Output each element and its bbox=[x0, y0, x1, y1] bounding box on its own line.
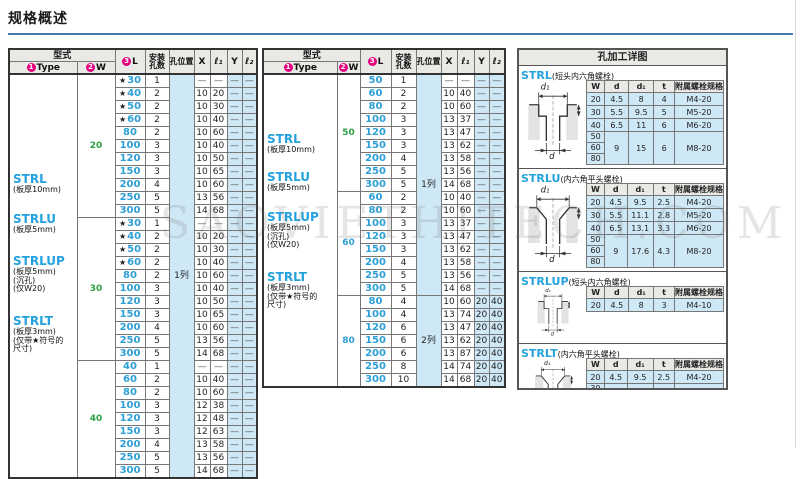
l1-value-cell: 60 bbox=[457, 296, 474, 309]
table-header-row: Wdd₁t附属螺栓规格 bbox=[587, 81, 724, 93]
y-value-cell: — bbox=[227, 283, 242, 296]
l-value: 300 bbox=[365, 179, 386, 190]
l1-value-cell: 40 bbox=[210, 114, 227, 127]
column-header: 附属螺栓规格 bbox=[674, 184, 723, 196]
table-row: 204.59.52.5M4-20 bbox=[587, 196, 724, 209]
hole-position-cell: 2列 bbox=[416, 296, 441, 388]
hole-count-cell: 5 bbox=[391, 166, 416, 179]
l2-value-cell: — bbox=[242, 374, 257, 387]
hole-count-cell: 8 bbox=[391, 361, 416, 374]
hole-position-column-header: 孔位置 bbox=[169, 49, 194, 74]
l-value-cell: 300 bbox=[115, 465, 145, 479]
l1-value-cell: 40 bbox=[210, 140, 227, 153]
l2-value-cell: — bbox=[242, 400, 257, 413]
t-value-cell: 6 bbox=[654, 132, 675, 165]
column-header: d bbox=[604, 184, 627, 196]
x-value-cell: 10 bbox=[194, 166, 210, 179]
x-value-cell: 14 bbox=[441, 283, 457, 296]
y-value-cell: — bbox=[474, 74, 489, 88]
w-size-cell: 40 bbox=[587, 222, 605, 235]
hole-count-cell: 1 bbox=[145, 218, 169, 231]
d-value-cell: 6.5 bbox=[604, 222, 627, 235]
l1-value-cell: 40 bbox=[210, 283, 227, 296]
table-row: 406.513.13.3M6-20 bbox=[587, 222, 724, 235]
l1-value-cell: 74 bbox=[457, 309, 474, 322]
w-size-cell: 30 bbox=[587, 384, 605, 391]
x-value-cell: 13 bbox=[441, 153, 457, 166]
l-value: 250 bbox=[365, 270, 386, 281]
spec-value-cell: M4-20 bbox=[674, 93, 723, 106]
x-value-cell: 10 bbox=[194, 270, 210, 283]
l1-value-cell: 60 bbox=[457, 205, 474, 218]
l1-value-cell: 60 bbox=[210, 322, 227, 335]
y-value-cell: — bbox=[227, 166, 242, 179]
x-value-cell: 14 bbox=[194, 465, 210, 479]
l-value: 200 bbox=[365, 348, 386, 359]
l-value-cell: 60 bbox=[360, 192, 391, 205]
x-value-cell: 10 bbox=[194, 114, 210, 127]
section-body: d₁dWdd₁t附属螺栓规格204.59.52.5M4-20305.511.12… bbox=[521, 183, 724, 268]
l-value-cell: 120 bbox=[115, 296, 145, 309]
spec-value-cell: M8-20 bbox=[674, 235, 723, 268]
l1-value-cell: 65 bbox=[210, 166, 227, 179]
l-value-cell: 200 bbox=[360, 257, 391, 270]
l-value-cell: 100 bbox=[360, 218, 391, 231]
l-value-cell: 120 bbox=[115, 153, 145, 166]
l1-value-cell: 68 bbox=[457, 283, 474, 296]
y-value-cell: — bbox=[474, 179, 489, 192]
spec-value-cell: M4-20 bbox=[674, 371, 723, 384]
x-value-cell: 13 bbox=[441, 231, 457, 244]
y-value-cell: — bbox=[227, 400, 242, 413]
table-header-row: Wdd₁t附属螺栓规格 bbox=[587, 359, 724, 371]
x-value-cell: 10 bbox=[441, 88, 457, 101]
column-header: d bbox=[604, 359, 627, 371]
l1-value-cell: 40 bbox=[210, 374, 227, 387]
l2-value-cell: — bbox=[242, 296, 257, 309]
w-value-cell: 60 bbox=[337, 192, 360, 296]
hole-count-cell: 2 bbox=[145, 257, 169, 270]
hole-count-cell: 3 bbox=[145, 309, 169, 322]
hole-count-cell: 3 bbox=[391, 140, 416, 153]
x-value-cell: 10 bbox=[194, 296, 210, 309]
l2-value-cell: — bbox=[489, 179, 505, 192]
l2-value-cell: — bbox=[242, 413, 257, 426]
l-value: 50 bbox=[369, 75, 383, 86]
hole-detail-section-strl: STRL(短头内六角螺栓)d₁dWdd₁t附属螺栓规格204.584M4-203… bbox=[519, 66, 726, 168]
l-value-cell: 120 bbox=[115, 413, 145, 426]
hole-position-cell: 1列 bbox=[169, 74, 194, 478]
y-value-cell: — bbox=[227, 452, 242, 465]
l-value-cell: 150 bbox=[360, 244, 391, 257]
l-value: 80 bbox=[123, 387, 137, 398]
hole-count-cell: 3 bbox=[391, 244, 416, 257]
l-value: 120 bbox=[365, 322, 386, 333]
l-value: 80 bbox=[123, 127, 137, 138]
y-value-cell: — bbox=[474, 192, 489, 205]
hole-count-cell: 2 bbox=[145, 231, 169, 244]
l2-value-cell: — bbox=[489, 88, 505, 101]
l1-value-cell: 56 bbox=[457, 166, 474, 179]
hole-count-cell: 6 bbox=[391, 322, 416, 335]
w-size-cell: 20 bbox=[587, 93, 605, 106]
l1-value-cell: 60 bbox=[210, 179, 227, 192]
y-value-cell: — bbox=[474, 231, 489, 244]
x-value-cell: 13 bbox=[441, 309, 457, 322]
l1-value-cell: — bbox=[210, 74, 227, 88]
l-value-cell: 250 bbox=[115, 452, 145, 465]
l-value: 200 bbox=[120, 439, 141, 450]
y-value-cell: — bbox=[227, 205, 242, 218]
type-list-cell: STRL(板厚10mm)STRLU(板厚5mm)STRLUP(板厚5mm)(沉孔… bbox=[263, 74, 337, 387]
hole-count-cell: 5 bbox=[145, 335, 169, 348]
column-header: W bbox=[587, 287, 605, 299]
x-value-cell: 13 bbox=[194, 192, 210, 205]
l-value: 300 bbox=[120, 205, 141, 216]
l1-value-cell: 38 bbox=[210, 400, 227, 413]
y-value-cell: — bbox=[227, 426, 242, 439]
l1-value-cell: 40 bbox=[210, 257, 227, 270]
w-size-cell: 50 bbox=[587, 235, 605, 246]
l-value-cell: ★40 bbox=[115, 88, 145, 101]
x-value-cell: — bbox=[194, 361, 210, 374]
l-value-cell: 200 bbox=[115, 439, 145, 452]
x-value-cell: 12 bbox=[194, 426, 210, 439]
star-mark: ★ bbox=[119, 115, 126, 124]
l-value-cell: 150 bbox=[360, 140, 391, 153]
type-column-header: 1Type bbox=[263, 62, 337, 75]
table-row: 406.5116M6-20 bbox=[587, 119, 724, 132]
l-value-cell: 100 bbox=[115, 400, 145, 413]
hole-detail-panel-title: 孔加工详图 bbox=[519, 50, 726, 66]
counterbore-diagram-icon: d₁d bbox=[521, 80, 585, 164]
l1-value-cell: 47 bbox=[457, 127, 474, 140]
l-value-cell: 80 bbox=[115, 270, 145, 283]
l2-value-cell: — bbox=[242, 231, 257, 244]
x-value-cell: 13 bbox=[441, 166, 457, 179]
l1-value-cell: 87 bbox=[457, 348, 474, 361]
l2-column-header: ℓ₂ bbox=[242, 49, 257, 74]
table-header-row: Wdd₁t附属螺栓规格 bbox=[587, 184, 724, 196]
l-value-cell: 200 bbox=[360, 153, 391, 166]
y-value-cell: — bbox=[227, 257, 242, 270]
l2-value-cell: — bbox=[489, 140, 505, 153]
l1-value-cell: 40 bbox=[457, 192, 474, 205]
l-value: 60 bbox=[127, 114, 141, 125]
hole-count-cell: 1 bbox=[391, 74, 416, 88]
svg-text:d₁: d₁ bbox=[544, 360, 551, 367]
l-value-cell: 80 bbox=[115, 127, 145, 140]
l1-value-cell: 47 bbox=[457, 322, 474, 335]
l2-value-cell: — bbox=[489, 283, 505, 296]
column-header: 附属螺栓规格 bbox=[674, 287, 723, 299]
l2-value-cell: — bbox=[489, 192, 505, 205]
page-edge-line bbox=[795, 0, 796, 448]
l1-value-cell: 62 bbox=[457, 244, 474, 257]
y-value-cell: — bbox=[227, 231, 242, 244]
y-value-cell: — bbox=[474, 166, 489, 179]
l-value: 40 bbox=[127, 88, 141, 99]
section-title: STRLUP(短头内六角螺栓) bbox=[521, 273, 724, 286]
hole-count-cell: 3 bbox=[145, 283, 169, 296]
hole-detail-section-strlu: STRLU(内六角平头螺栓)d₁dWdd₁t附属螺栓规格204.59.52.5M… bbox=[519, 168, 726, 271]
l2-value-cell: — bbox=[489, 270, 505, 283]
type-note: (板厚5mm) bbox=[267, 184, 310, 192]
hole-dimension-table: Wdd₁t附属螺栓规格204.59.52.5M4-20305.511.12.8M… bbox=[586, 358, 724, 390]
type-list-cell: STRL(板厚10mm)STRLU(板厚5mm)STRLUP(板厚5mm)(沉孔… bbox=[9, 74, 77, 478]
length-column-header: 3L bbox=[115, 49, 145, 74]
l2-value-cell: — bbox=[242, 322, 257, 335]
l-value: 300 bbox=[120, 465, 141, 476]
d1-value-cell: 17.6 bbox=[627, 235, 653, 268]
l-value-cell: 150 bbox=[360, 335, 391, 348]
hole-count-cell: 3 bbox=[391, 218, 416, 231]
l-value: 120 bbox=[120, 153, 141, 164]
circled-number-3: 3 bbox=[368, 57, 377, 66]
y-value-cell: — bbox=[227, 88, 242, 101]
l2-value-cell: 40 bbox=[489, 348, 505, 361]
l-value-cell: ★30 bbox=[115, 218, 145, 231]
w-value-cell: 80 bbox=[337, 296, 360, 388]
x-value-cell: 13 bbox=[441, 218, 457, 231]
l1-value-cell: 68 bbox=[457, 374, 474, 388]
x-value-cell: 14 bbox=[441, 361, 457, 374]
hole-count-cell: 2 bbox=[391, 88, 416, 101]
l-value: 100 bbox=[120, 140, 141, 151]
l2-value-cell: 40 bbox=[489, 374, 505, 388]
w-value-cell: 50 bbox=[337, 74, 360, 192]
l-value: 60 bbox=[369, 88, 383, 99]
y-value-cell: — bbox=[474, 283, 489, 296]
l1-value-cell: 30 bbox=[210, 101, 227, 114]
l1-value-cell: 56 bbox=[210, 335, 227, 348]
l-value-cell: 250 bbox=[115, 335, 145, 348]
mount-holes-line2: 孔数 bbox=[149, 61, 165, 70]
x-value-cell: 10 bbox=[194, 387, 210, 400]
spec-value-cell: M8-20 bbox=[674, 132, 723, 165]
countersink-diagram-icon: d₁d bbox=[521, 358, 585, 390]
y-value-cell: — bbox=[227, 413, 242, 426]
d-value-cell: 5.5 bbox=[605, 106, 629, 119]
l2-value-cell: — bbox=[489, 114, 505, 127]
x-value-cell: 10 bbox=[194, 101, 210, 114]
l-value-cell: 150 bbox=[115, 166, 145, 179]
l1-value-cell: — bbox=[457, 74, 474, 88]
l-value-cell: 300 bbox=[115, 348, 145, 361]
x-value-cell: 14 bbox=[441, 374, 457, 388]
l-value: 60 bbox=[123, 374, 137, 385]
l1-value-cell: 65 bbox=[210, 309, 227, 322]
svg-text:d₁: d₁ bbox=[541, 83, 550, 93]
hole-count-cell: 4 bbox=[391, 153, 416, 166]
l1-value-cell: 48 bbox=[210, 413, 227, 426]
l-value: 40 bbox=[127, 231, 141, 242]
l1-value-cell: 60 bbox=[210, 270, 227, 283]
y-value-cell: 20 bbox=[474, 361, 489, 374]
l2-value-cell: — bbox=[242, 114, 257, 127]
x-value-cell: 10 bbox=[194, 88, 210, 101]
hole-count-cell: 5 bbox=[145, 348, 169, 361]
l-value: 120 bbox=[120, 413, 141, 424]
table-row: 204.584M4-20 bbox=[587, 93, 724, 106]
l-value-cell: 250 bbox=[360, 270, 391, 283]
l2-column-header: ℓ₂ bbox=[489, 49, 505, 74]
x-value-cell: 12 bbox=[194, 400, 210, 413]
type-note: (板厚5mm) bbox=[13, 226, 56, 234]
l1-column-header: ℓ₁ bbox=[210, 49, 227, 74]
l-value: 50 bbox=[127, 244, 141, 255]
l-value-cell: 250 bbox=[115, 192, 145, 205]
l-value: 150 bbox=[365, 244, 386, 255]
hole-position-column-header: 孔位置 bbox=[416, 49, 441, 74]
column-header: W bbox=[587, 184, 605, 196]
x-value-cell: 13 bbox=[441, 140, 457, 153]
spec-value-cell: M6-20 bbox=[674, 119, 723, 132]
l-value-cell: 50 bbox=[360, 74, 391, 88]
l-value-cell: 300 bbox=[115, 205, 145, 218]
type-group-header: 型式 bbox=[263, 49, 360, 62]
l1-value-cell: 30 bbox=[210, 244, 227, 257]
hole-count-cell: 2 bbox=[391, 205, 416, 218]
hole-dimension-table: Wdd₁t附属螺栓规格204.584M4-20305.59.55M5-20406… bbox=[586, 80, 724, 165]
x-value-cell: 13 bbox=[441, 348, 457, 361]
y-value-cell: 20 bbox=[474, 322, 489, 335]
hole-position-cell: 1列 bbox=[416, 74, 441, 296]
l1-value-cell: 50 bbox=[210, 153, 227, 166]
hole-detail-section-strlup: STRLUP(短头内六角螺栓)d₁dWdd₁t附属螺栓规格204.583M4-1… bbox=[519, 271, 726, 343]
l-value: 150 bbox=[365, 140, 386, 151]
hole-count-cell: 4 bbox=[145, 322, 169, 335]
y-value-cell: — bbox=[227, 465, 242, 479]
y-column-header: Y bbox=[474, 49, 489, 74]
t-value-cell: 6 bbox=[654, 119, 675, 132]
l-value-cell: 100 bbox=[360, 309, 391, 322]
hole-count-cell: 2 bbox=[145, 114, 169, 127]
svg-text:d: d bbox=[551, 331, 555, 336]
l-value-cell: 80 bbox=[360, 205, 391, 218]
l2-value-cell: — bbox=[242, 283, 257, 296]
hole-count-cell: 2 bbox=[145, 127, 169, 140]
t-value-cell: 3 bbox=[654, 299, 675, 312]
x-value-cell: 13 bbox=[441, 114, 457, 127]
x-value-cell: 10 bbox=[194, 127, 210, 140]
svg-text:d₁: d₁ bbox=[541, 186, 550, 196]
y-value-cell: — bbox=[227, 309, 242, 322]
t-value-cell: 2.8 bbox=[653, 209, 674, 222]
d-value-cell: 4.5 bbox=[605, 93, 629, 106]
x-column-header: X bbox=[194, 49, 210, 74]
hole-count-cell: 3 bbox=[145, 400, 169, 413]
x-value-cell: 10 bbox=[441, 205, 457, 218]
l2-value-cell: — bbox=[242, 179, 257, 192]
t-value-cell: 2.8 bbox=[653, 384, 674, 391]
column-header: t bbox=[654, 81, 675, 93]
y-value-cell: — bbox=[227, 270, 242, 283]
l-value-cell: 60 bbox=[360, 88, 391, 101]
x-value-cell: 10 bbox=[194, 374, 210, 387]
w-size-cell: 80 bbox=[587, 257, 605, 268]
l1-value-cell: 20 bbox=[210, 88, 227, 101]
x-value-cell: 10 bbox=[194, 179, 210, 192]
l-value: 100 bbox=[365, 309, 386, 320]
l-value-cell: ★40 bbox=[115, 231, 145, 244]
circled-number-3: 3 bbox=[122, 57, 131, 66]
y-value-cell: — bbox=[227, 114, 242, 127]
y-value-cell: — bbox=[474, 114, 489, 127]
l2-value-cell: 40 bbox=[489, 335, 505, 348]
l1-value-cell: 37 bbox=[457, 114, 474, 127]
l2-value-cell: — bbox=[242, 74, 257, 88]
section-body: d₁dWdd₁t附属螺栓规格204.584M4-20305.59.55M5-20… bbox=[521, 80, 724, 165]
d1-value-cell: 11.1 bbox=[627, 384, 653, 391]
l-value: 250 bbox=[365, 361, 386, 372]
l1-value-cell: 47 bbox=[457, 231, 474, 244]
l-value: 60 bbox=[127, 257, 141, 268]
l-value: 30 bbox=[127, 218, 141, 229]
l2-value-cell: — bbox=[242, 465, 257, 479]
l2-value-cell: — bbox=[489, 231, 505, 244]
y-value-cell: — bbox=[227, 361, 242, 374]
hole-count-cell: 2 bbox=[145, 88, 169, 101]
mount-holes-column-header: 安装孔数 bbox=[391, 49, 416, 74]
l1-value-cell: 68 bbox=[210, 348, 227, 361]
l2-value-cell: — bbox=[242, 166, 257, 179]
table-row: 305.511.12.8M5-20 bbox=[587, 209, 724, 222]
l-value-cell: 250 bbox=[360, 361, 391, 374]
l-value-cell: 300 bbox=[360, 179, 391, 192]
hole-count-cell: 5 bbox=[145, 192, 169, 205]
y-value-cell: — bbox=[474, 218, 489, 231]
l1-value-cell: 58 bbox=[210, 439, 227, 452]
x-value-cell: 10 bbox=[194, 244, 210, 257]
hole-count-cell: 5 bbox=[145, 465, 169, 479]
spec-value-cell: M5-20 bbox=[674, 209, 723, 222]
l-value-cell: 120 bbox=[360, 127, 391, 140]
l2-value-cell: — bbox=[242, 439, 257, 452]
y-value-cell: — bbox=[227, 348, 242, 361]
l2-value-cell: — bbox=[242, 426, 257, 439]
l2-value-cell: — bbox=[489, 218, 505, 231]
l1-value-cell: 74 bbox=[457, 361, 474, 374]
column-header: W bbox=[587, 359, 605, 371]
l2-value-cell: — bbox=[489, 257, 505, 270]
y-value-cell: — bbox=[227, 74, 242, 88]
x-value-cell: 10 bbox=[194, 322, 210, 335]
l2-value-cell: — bbox=[242, 348, 257, 361]
column-header: 附属螺栓规格 bbox=[674, 81, 723, 93]
l2-value-cell: — bbox=[242, 309, 257, 322]
l1-value-cell: 68 bbox=[457, 179, 474, 192]
x-value-cell: 10 bbox=[194, 153, 210, 166]
column-header: t bbox=[653, 184, 674, 196]
table-row: STRL(板厚10mm)STRLU(板厚5mm)STRLUP(板厚5mm)(沉孔… bbox=[263, 74, 505, 88]
d-value-cell: 5.5 bbox=[604, 209, 627, 222]
y-value-cell: — bbox=[227, 296, 242, 309]
l2-value-cell: 40 bbox=[489, 296, 505, 309]
l-value-cell: ★60 bbox=[115, 257, 145, 270]
type-block-strl: STRL(板厚10mm) bbox=[267, 133, 315, 155]
y-value-cell: 20 bbox=[474, 374, 489, 388]
y-value-cell: — bbox=[474, 153, 489, 166]
column-header: d₁ bbox=[629, 287, 654, 299]
l-value: 250 bbox=[120, 452, 141, 463]
l-value-cell: 200 bbox=[115, 322, 145, 335]
d1-value-cell: 13.1 bbox=[627, 222, 653, 235]
l1-value-cell: 60 bbox=[210, 387, 227, 400]
l1-value-cell: — bbox=[210, 218, 227, 231]
l-value: 120 bbox=[365, 127, 386, 138]
l-value-cell: 200 bbox=[360, 348, 391, 361]
